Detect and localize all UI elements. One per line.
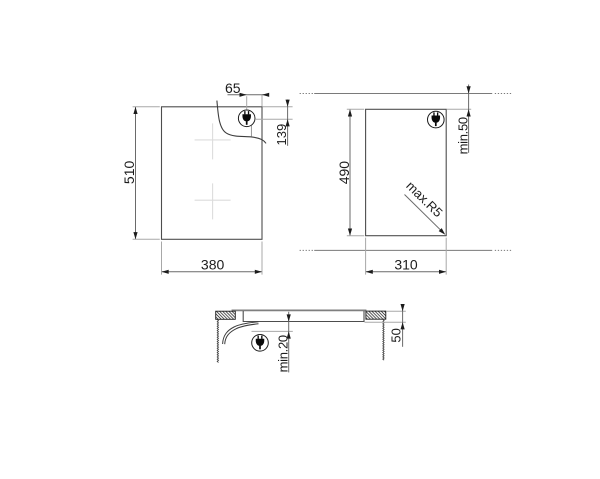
svg-text:min.20: min.20: [276, 335, 291, 372]
svg-text:139: 139: [274, 124, 289, 146]
svg-text:min.50: min.50: [455, 117, 470, 154]
svg-text:65: 65: [225, 80, 241, 96]
svg-text:380: 380: [201, 257, 225, 273]
svg-text:510: 510: [121, 161, 137, 185]
svg-text:490: 490: [336, 161, 352, 185]
svg-text:310: 310: [394, 257, 418, 273]
svg-text:50: 50: [389, 328, 404, 342]
